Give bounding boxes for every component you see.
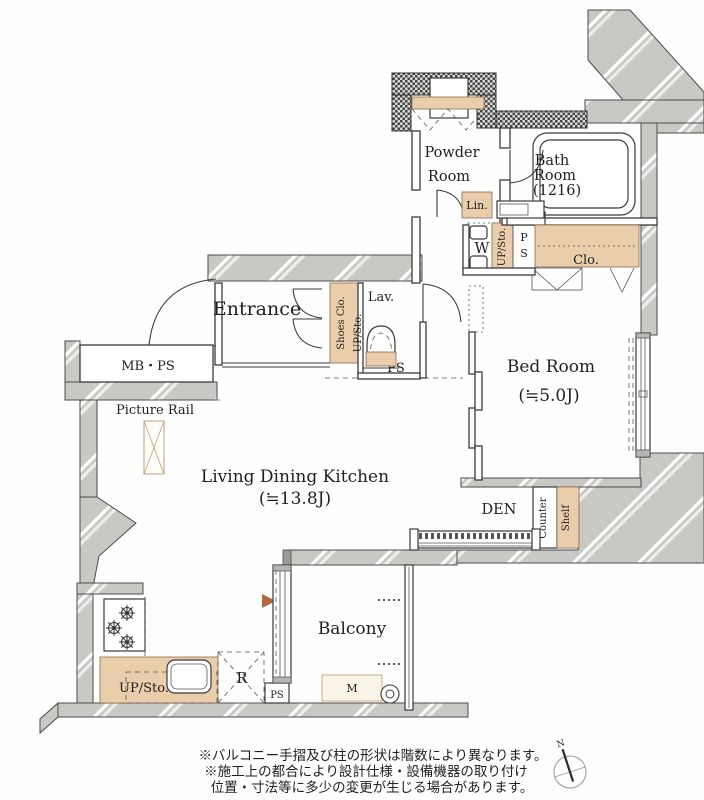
wall-powder-left-b xyxy=(412,217,420,283)
washer-faucet-bottom xyxy=(470,256,487,269)
kitchen: UP/Sto. R PS xyxy=(100,597,289,703)
bedroom-label-1: Bed Room xyxy=(507,357,595,377)
powder-door-arc xyxy=(437,190,464,217)
powder-room-label-1: Powder xyxy=(424,145,479,161)
ldk-label-2: (≒13.8J) xyxy=(259,489,331,509)
bath-label-3: (1216) xyxy=(533,183,581,199)
ps-s-label: S xyxy=(520,247,528,260)
compass: N xyxy=(544,735,590,792)
compass-needle xyxy=(563,749,574,781)
wall-powder-bath-a xyxy=(500,128,510,148)
burner-2 xyxy=(106,620,122,636)
stove xyxy=(104,599,145,651)
lav-door-arc xyxy=(423,284,461,322)
wall-lav-right xyxy=(420,322,426,378)
burner-1 xyxy=(119,605,135,621)
futon-shelf xyxy=(532,268,582,290)
washer-label: W xyxy=(475,241,490,257)
den-window-jamb-right xyxy=(532,529,540,550)
wall-bedroom-bottom xyxy=(461,478,641,487)
checker-bath xyxy=(496,111,587,128)
wall-powder-left-a xyxy=(412,131,420,190)
wall-left-upper xyxy=(80,400,97,497)
powder-room-label-2: Room xyxy=(428,169,470,185)
ldk-cabinet-symbol xyxy=(144,421,164,474)
notes: ※バルコニー手摺及び柱の形状は階数により異なります。 ※施工上の都合により設計仕… xyxy=(198,748,547,796)
note-line-3: 位置・寸法等に多少の変更が生じる場合があります。 xyxy=(211,779,534,796)
burner-3 xyxy=(119,634,135,650)
wall-balcony-top xyxy=(287,550,457,565)
wall-bottom-left-wedge xyxy=(40,703,58,733)
window-cap-bottom xyxy=(636,450,650,457)
wall-cap xyxy=(283,550,291,565)
hanger-v1 xyxy=(532,268,582,290)
wall-bedroom-top xyxy=(463,268,535,275)
bedroom-closet: Clo. xyxy=(532,225,639,292)
bedroom-label-2: (≒5.0J) xyxy=(518,386,579,406)
partition-panel-3 xyxy=(469,408,475,448)
balcony-label: Balcony xyxy=(318,619,387,639)
wall-entrance-left xyxy=(215,283,222,365)
washer-faucet-top xyxy=(470,226,487,239)
partition-panel-4 xyxy=(475,446,482,480)
shoes-door-arc-2 xyxy=(293,319,322,348)
upsto-kitchen-label: UP/Sto. xyxy=(119,681,169,696)
fridge-label: R xyxy=(237,671,249,687)
wall-left-bump xyxy=(80,497,136,587)
picture-rail-label: Picture Rail xyxy=(116,403,194,418)
wall-mbps-bottom xyxy=(65,382,217,400)
bedroom-window xyxy=(636,333,650,457)
meter-box: MB・PS Picture Rail xyxy=(80,345,220,418)
closet-label: Clo. xyxy=(573,253,599,268)
den-label: DEN xyxy=(482,502,517,518)
note-line-1: ※バルコニー手摺及び柱の形状は階数により異なります。 xyxy=(198,748,547,764)
shelf-label: Shelf xyxy=(561,504,572,531)
floor-plan: Powder Room Lin. W UP/Sto. P S Bath Room… xyxy=(0,0,704,800)
living-dining-kitchen: Living Dining Kitchen (≒13.8J) xyxy=(144,421,389,608)
wall-kitchen-top xyxy=(77,583,143,594)
lavatory: Lav. UP/Sto. xyxy=(353,283,461,379)
checker-left xyxy=(392,95,411,131)
partition-panel-1 xyxy=(469,332,475,374)
window-cap-top xyxy=(636,333,650,338)
shelf-powder-top xyxy=(412,97,484,109)
den: DEN Counter Shelf xyxy=(410,487,579,550)
front-door-arc xyxy=(149,279,216,346)
partition-panel-2 xyxy=(475,372,482,410)
ldk-label-1: Living Dining Kitchen xyxy=(201,467,389,487)
upsto-lav-label: UP/Sto. xyxy=(353,314,364,352)
linen-label: Lin. xyxy=(466,199,487,212)
floor-plan-page: Powder Room Lin. W UP/Sto. P S Bath Room… xyxy=(0,0,704,800)
den-window-jamb-left xyxy=(410,529,418,550)
toilet-tank xyxy=(366,352,396,366)
shoes-closet-label: Shoes Clo. xyxy=(336,296,347,349)
wall-entrance-top xyxy=(208,255,422,281)
powder-room: Powder Room Lin. W UP/Sto. P S xyxy=(412,78,528,283)
bath-room: Bath Room (1216) xyxy=(497,133,657,225)
bedroom-door-opening xyxy=(469,286,483,332)
compass-north-label: N xyxy=(556,738,567,750)
entrance-label: Entrance xyxy=(213,298,301,320)
note-line-2: ※施工上の都合により設計仕様・設備機器の取り付け xyxy=(204,764,528,780)
meter-box-label: M xyxy=(346,682,357,695)
hanger-v2 xyxy=(610,268,634,292)
ps-kitchen-label: PS xyxy=(270,690,284,701)
balcony: Balcony M xyxy=(273,565,413,710)
drain-outer xyxy=(381,685,399,703)
bath-label-1: Bath xyxy=(535,153,569,169)
bath-label-2: Room xyxy=(534,168,576,184)
lav-label: Lav. xyxy=(368,290,394,305)
mbps-label: MB・PS xyxy=(121,359,175,374)
vanity-counter xyxy=(497,201,544,218)
upsto-powder-label: UP/Sto. xyxy=(497,228,508,266)
wall-lav-bottom xyxy=(358,373,420,379)
wall-hall-bedroom xyxy=(463,225,469,270)
wall-kitchen-left xyxy=(77,587,93,703)
balcony-door-cap-bottom xyxy=(273,677,291,683)
wall-bath-top xyxy=(585,100,704,123)
wall-right xyxy=(641,123,657,335)
ps-p-label: P xyxy=(520,231,528,244)
